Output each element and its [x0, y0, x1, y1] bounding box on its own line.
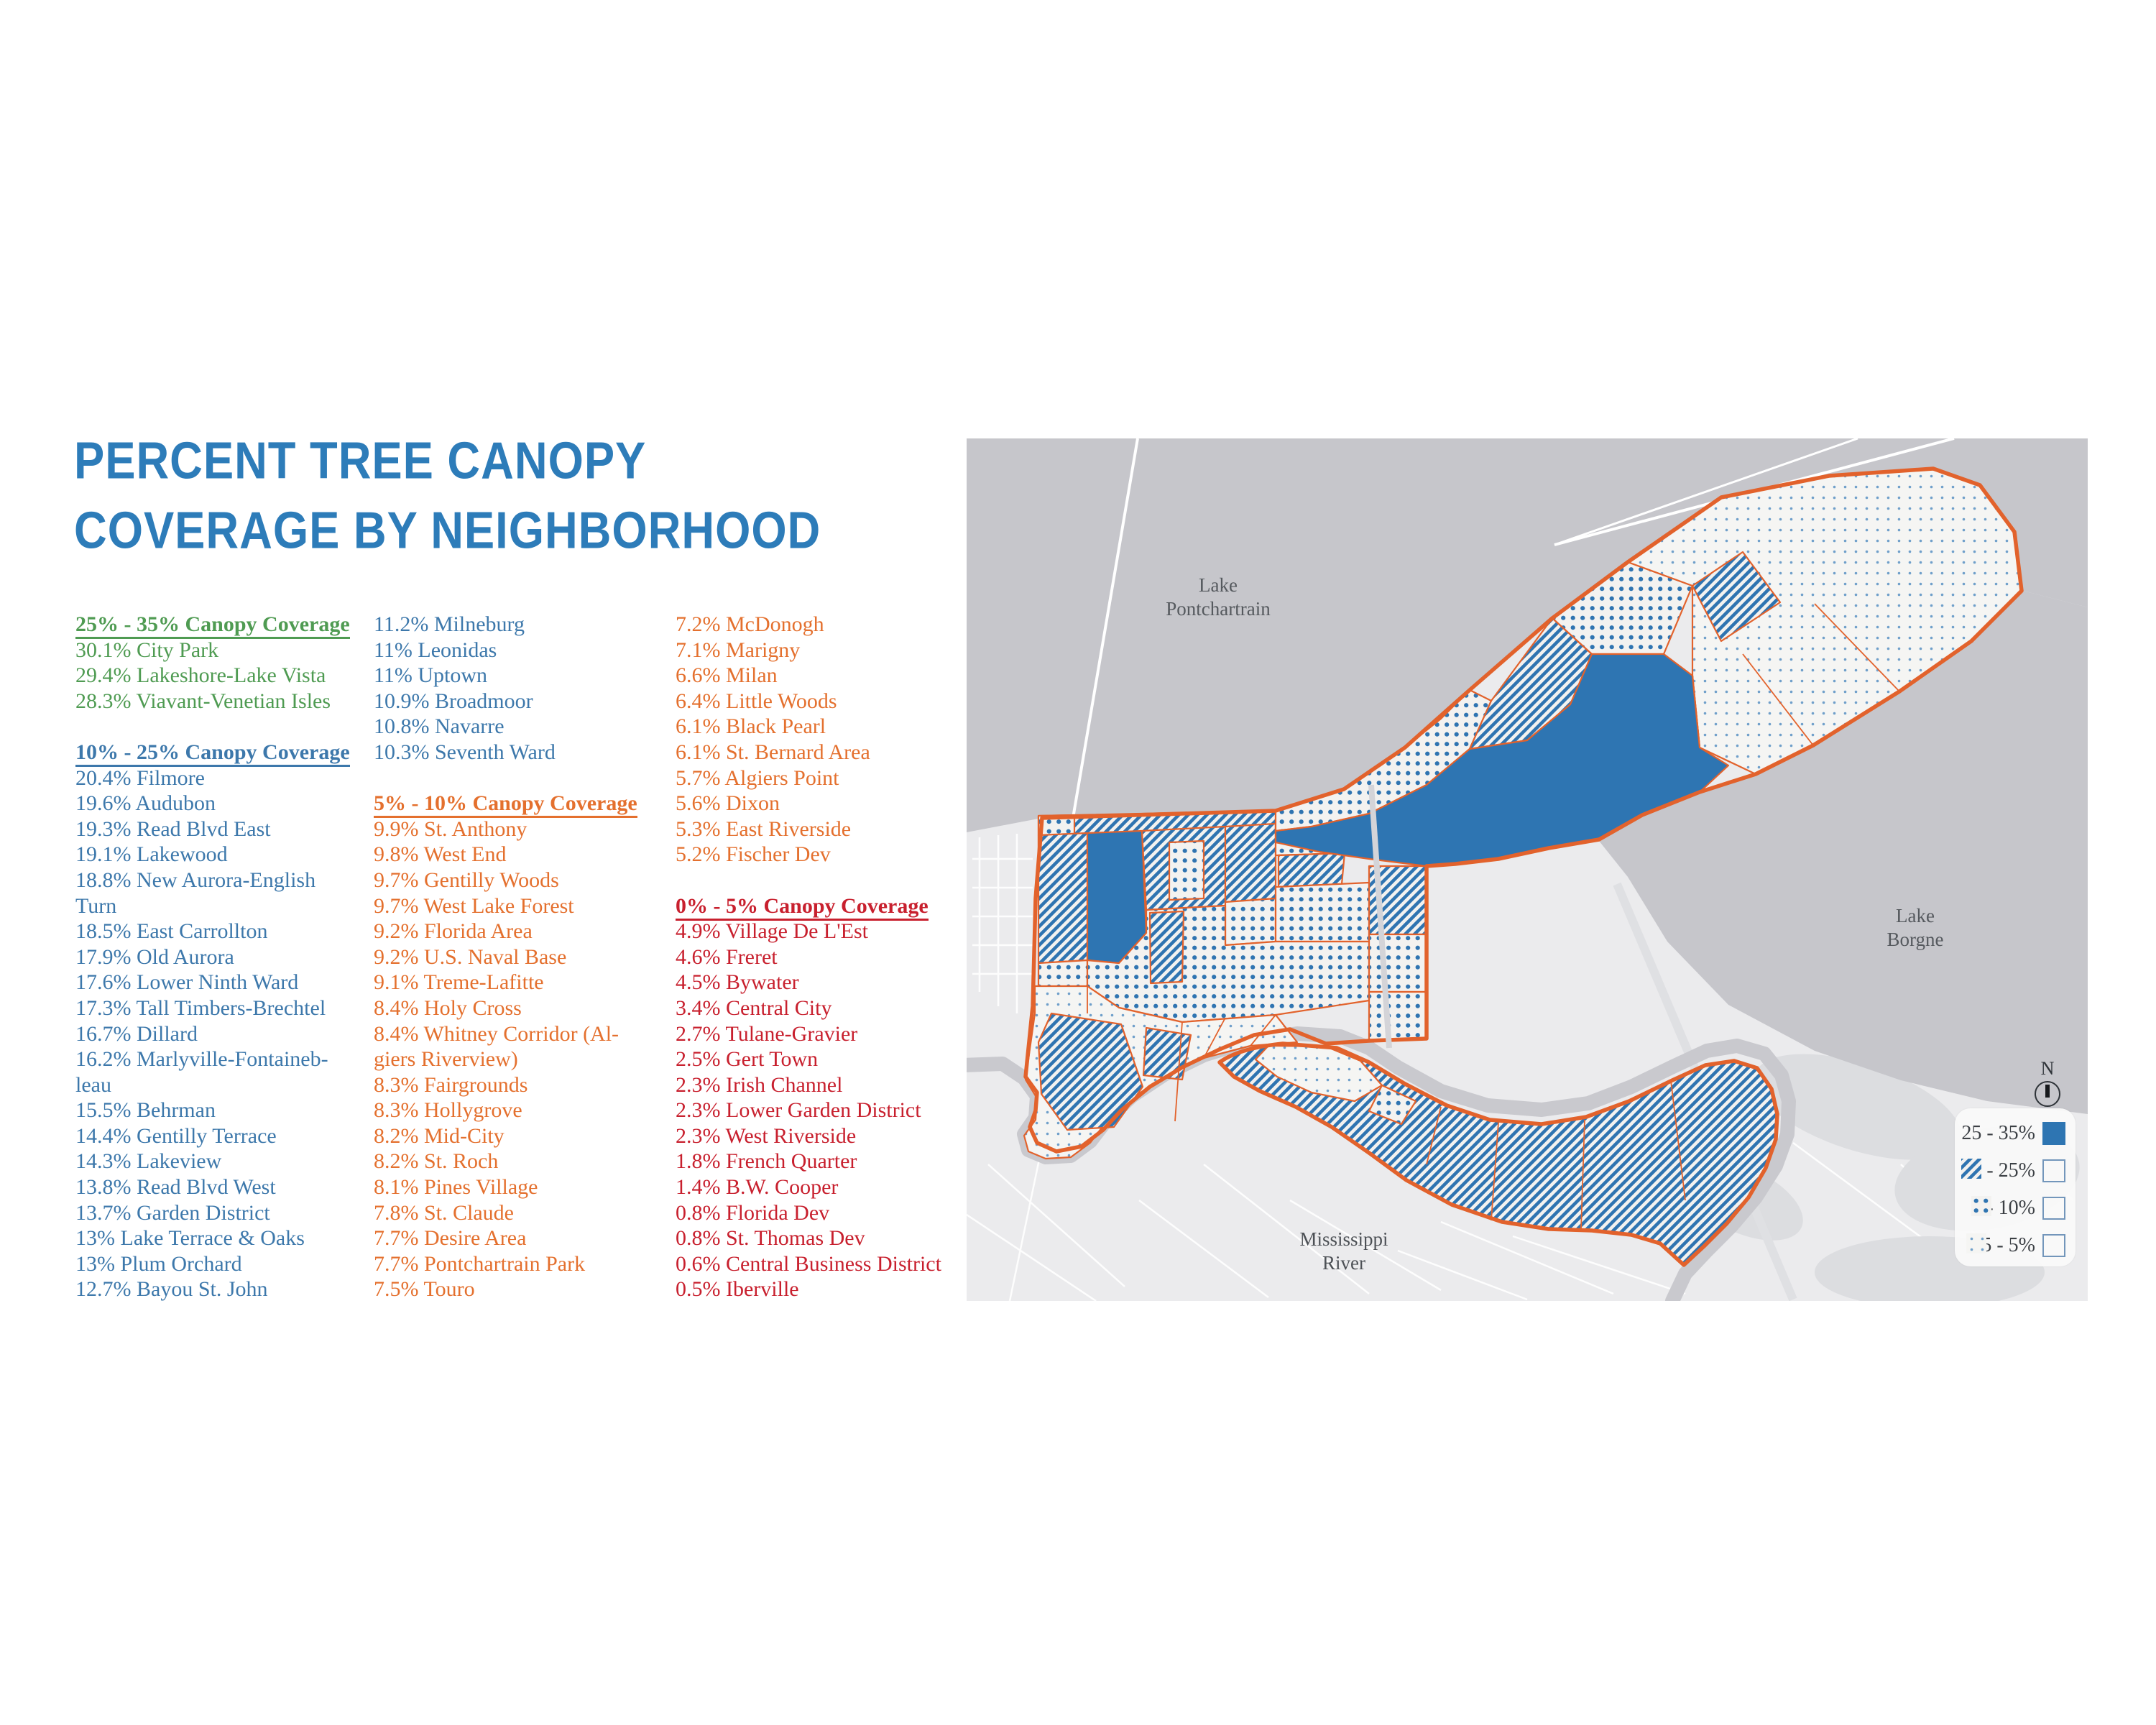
canopy-list-line: 8.3% Fairgrounds [374, 1073, 637, 1099]
compass-icon [2035, 1081, 2060, 1107]
canopy-list-line: 11% Leonidas [374, 638, 637, 664]
parcel-holy-cross [1369, 992, 1427, 1041]
canopy-list-line: 13% Lake Terrace & Oaks [75, 1226, 350, 1252]
canopy-list-line: 3.4% Central City [676, 996, 941, 1022]
canopy-list-line: 9.7% West Lake Forest [374, 894, 637, 920]
parcel-navarre [1038, 960, 1087, 989]
map-legend: 25 - 35% 10 - 25% 5 - 10% 0.5 - 5% [1955, 1108, 2076, 1266]
canopy-list-line: 19.3% Read Blvd East [75, 817, 350, 843]
legend-label-25-35: 25 - 35% [1961, 1122, 2035, 1145]
canopy-list-line: 9.2% U.S. Naval Base [374, 945, 637, 971]
canopy-list-line: 10.8% Navarre [374, 714, 637, 740]
legend-swatch-solid-icon [2042, 1122, 2065, 1145]
canopy-group-header: 5% - 10% Canopy Coverage [374, 791, 637, 817]
parcel-marlyville [1143, 1028, 1191, 1080]
canopy-list-line: 9.9% St. Anthony [374, 817, 637, 843]
canopy-list-line: 13% Plum Orchard [75, 1252, 350, 1278]
canopy-list-line: 15.5% Behrman [75, 1098, 350, 1124]
canopy-list-line: 14.4% Gentilly Terrace [75, 1124, 350, 1150]
canopy-group-header: 0% - 5% Canopy Coverage [676, 894, 941, 920]
new-orleans-canopy-map: Lake Pontchartrain Lake Borgne Mississip… [967, 438, 2088, 1301]
legend-swatch-dense-dots-icon [2042, 1197, 2065, 1220]
parcel-lakeview [1038, 833, 1087, 963]
canopy-list-line: 7.8% St. Claude [374, 1201, 637, 1227]
canopy-list-line: 7.7% Pontchartrain Park [374, 1252, 637, 1278]
canopy-list-line: 8.1% Pines Village [374, 1175, 637, 1201]
canopy-list-line: 7.1% Marigny [676, 638, 941, 664]
canopy-list-line: 8.2% Mid-City [374, 1124, 637, 1150]
canopy-list-line: 11.2% Milneburg [374, 612, 637, 638]
canopy-list-line: 6.1% St. Bernard Area [676, 740, 941, 766]
canopy-list-line: 5.7% Algiers Point [676, 766, 941, 792]
legend-row-25-35: 25 - 35% [1961, 1121, 2065, 1146]
canopy-list-line: 7.5% Touro [374, 1277, 637, 1303]
canopy-list-line: 19.6% Audubon [75, 791, 350, 817]
canopy-list-line: 0.5% Iberville [676, 1277, 941, 1303]
mississippi-river-label: Mississippi River [1283, 1228, 1405, 1275]
canopy-list-line: 0.8% St. Thomas Dev [676, 1226, 941, 1252]
map-canvas [967, 438, 2088, 1301]
canopy-list-line: 12.7% Bayou St. John [75, 1277, 350, 1303]
canopy-list-line: 8.4% Holy Cross [374, 996, 637, 1022]
lake-borgne-label: Lake Borgne [1858, 904, 1973, 952]
parcel-st-claude [1369, 934, 1427, 992]
canopy-list-column-1: 25% - 35% Canopy Coverage30.1% City Park… [75, 612, 350, 1303]
canopy-list-line: 29.4% Lakeshore-Lake Vista [75, 663, 350, 689]
canopy-list-line: 7.7% Desire Area [374, 1226, 637, 1252]
canopy-list-line: 6.6% Milan [676, 663, 941, 689]
canopy-list-line: 9.1% Treme-Lafitte [374, 970, 637, 996]
list-spacer [75, 714, 350, 740]
canopy-list-line: 9.8% West End [374, 842, 637, 868]
legend-swatch-stripes-icon [2042, 1159, 2065, 1182]
canopy-list-line: 8.3% Hollygrove [374, 1098, 637, 1124]
canopy-list-line: 2.3% West Riverside [676, 1124, 941, 1150]
canopy-list-line: 6.1% Black Pearl [676, 714, 941, 740]
canopy-list-line: 30.1% City Park [75, 638, 350, 664]
canopy-list-line: 8.2% St. Roch [374, 1149, 637, 1175]
parcel-seventh-ward [1276, 883, 1369, 942]
list-spacer [676, 868, 941, 894]
canopy-group-header: 10% - 25% Canopy Coverage [75, 740, 350, 766]
canopy-list-line: 13.7% Garden District [75, 1201, 350, 1227]
legend-row-05-5: 0.5 - 5% [1966, 1233, 2065, 1258]
parcel-dillard [1225, 898, 1276, 945]
canopy-list-line: 4.5% Bywater [676, 970, 941, 996]
canopy-list-line: 14.3% Lakeview [75, 1149, 350, 1175]
canopy-list-line: 10.9% Broadmoor [374, 689, 637, 715]
canopy-list-line: 2.7% Tulane-Gravier [676, 1022, 941, 1048]
canopy-list-line: leau [75, 1073, 350, 1099]
canopy-list-line: 0.8% Florida Dev [676, 1201, 941, 1227]
canopy-list-line: 28.3% Viavant-Venetian Isles [75, 689, 350, 715]
canopy-list-line: 5.2% Fischer Dev [676, 842, 941, 868]
canopy-list-line: 2.3% Irish Channel [676, 1073, 941, 1099]
canopy-list-line: 8.4% Whitney Corridor (Al- [374, 1022, 637, 1048]
page-title: PERCENT TREE CANOPY COVERAGE BY NEIGHBOR… [74, 425, 821, 565]
canopy-list-column-3: 7.2% McDonogh7.1% Marigny6.6% Milan6.4% … [676, 612, 941, 1303]
canopy-list-line: 2.5% Gert Town [676, 1047, 941, 1073]
parcel-gentilly-terrace [1225, 824, 1276, 902]
page-title-line1: PERCENT TREE CANOPY [74, 425, 821, 495]
parcel-st-anthony [1279, 853, 1345, 887]
canopy-list-line: 13.8% Read Blvd West [75, 1175, 350, 1201]
canopy-list-line: 18.5% East Carrollton [75, 919, 350, 945]
canopy-list-line: 9.2% Florida Area [374, 919, 637, 945]
canopy-list-line: giers Riverview) [374, 1047, 637, 1073]
lake-pontchartrain-label: Lake Pontchartrain [1139, 574, 1297, 621]
canopy-list-line: 17.6% Lower Ninth Ward [75, 970, 350, 996]
page-title-line2: COVERAGE BY NEIGHBORHOOD [74, 495, 821, 565]
canopy-list-line: 9.7% Gentilly Woods [374, 868, 637, 894]
canopy-list-line: 7.2% McDonogh [676, 612, 941, 638]
legend-swatch-sparse-dots-icon [2042, 1234, 2065, 1257]
canopy-list-line: 1.8% French Quarter [676, 1149, 941, 1175]
north-compass: N [2026, 1058, 2069, 1107]
canopy-list-line: 16.7% Dillard [75, 1022, 350, 1048]
canopy-list-line: 10.3% Seventh Ward [374, 740, 637, 766]
canopy-list-line: 16.2% Marlyville-Fontaineb- [75, 1047, 350, 1073]
parcel-st-bernard-area [1169, 841, 1204, 900]
canopy-list-line: 17.9% Old Aurora [75, 945, 350, 971]
infographic-page: PERCENT TREE CANOPY COVERAGE BY NEIGHBOR… [0, 0, 2156, 1725]
canopy-list-column-2: 11.2% Milneburg11% Leonidas11% Uptown10.… [374, 612, 637, 1303]
canopy-list-line: 20.4% Filmore [75, 766, 350, 792]
compass-n-label: N [2026, 1058, 2069, 1080]
canopy-list-line: 4.6% Freret [676, 945, 941, 971]
canopy-list-line: 2.3% Lower Garden District [676, 1098, 941, 1124]
list-spacer [374, 766, 637, 792]
canopy-list-line: 19.1% Lakewood [75, 842, 350, 868]
canopy-list-line: 5.6% Dixon [676, 791, 941, 817]
canopy-group-header: 25% - 35% Canopy Coverage [75, 612, 350, 638]
legend-row-10-25: 10 - 25% [1961, 1159, 2065, 1183]
canopy-list-line: 0.6% Central Business District [676, 1252, 941, 1278]
canopy-list-line: 18.8% New Aurora-English [75, 868, 350, 894]
parcel-bayou-st-john [1150, 911, 1184, 983]
canopy-list-line: 11% Uptown [374, 663, 637, 689]
canopy-list-line: 17.3% Tall Timbers-Brechtel [75, 996, 350, 1022]
legend-row-5-10: 5 - 10% [1971, 1196, 2065, 1220]
canopy-list-line: 6.4% Little Woods [676, 689, 941, 715]
canopy-list-line: 5.3% East Riverside [676, 817, 941, 843]
canopy-list-line: 1.4% B.W. Cooper [676, 1175, 941, 1201]
canopy-list-line: 4.9% Village De L'Est [676, 919, 941, 945]
canopy-list-line: Turn [75, 894, 350, 920]
